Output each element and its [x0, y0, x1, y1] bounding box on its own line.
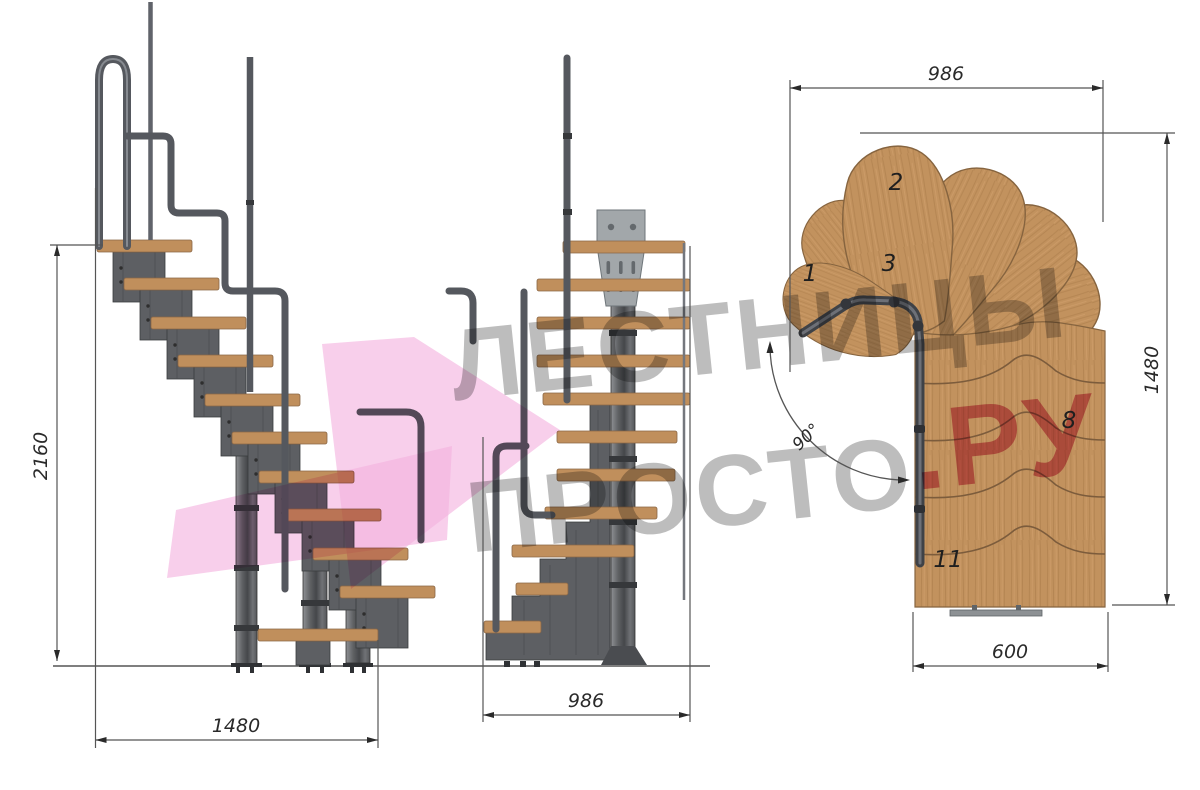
arc-arrow-up: [767, 341, 774, 353]
step-label-1: 1: [803, 261, 818, 287]
dim-1480-side: 1480: [212, 715, 260, 737]
step-label-8: 8: [1062, 408, 1077, 434]
arc-arrow-right: [898, 477, 910, 484]
dim-986-plan: 986: [928, 63, 964, 85]
dim-angle-90: 90°: [789, 420, 825, 455]
step-label-11: 11: [933, 547, 962, 573]
dim-1480-plan: 1480: [1141, 346, 1163, 394]
drawing-canvas: ЛЕСТНИЦЫ ПРОСТО.РУ: [0, 0, 1200, 790]
dimensions-layer: 2160 1480 986 986 1480 600 90° 1 2 3 8 1…: [0, 0, 1200, 790]
dim-2160: 2160: [30, 432, 52, 480]
dim-986-front: 986: [568, 690, 604, 712]
step-label-3: 3: [882, 251, 897, 277]
step-label-2: 2: [889, 170, 904, 196]
dim-600: 600: [992, 641, 1028, 663]
